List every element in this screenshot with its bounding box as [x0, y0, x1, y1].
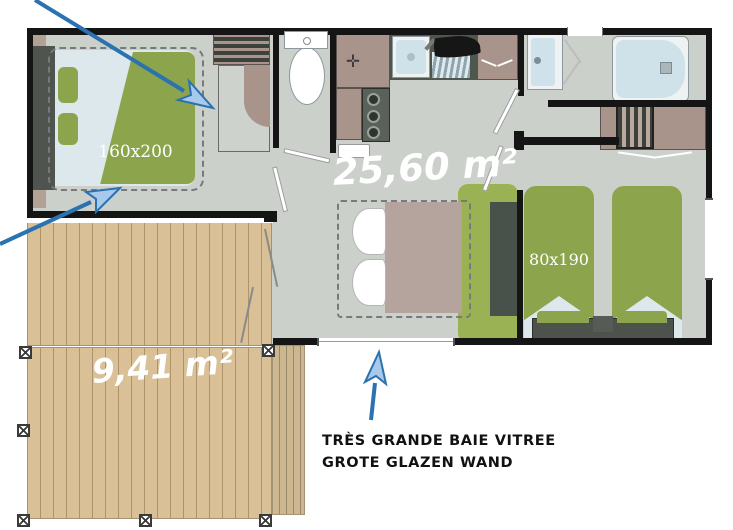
twin-beds-label: 80x190 — [524, 250, 594, 269]
deck-post-icon — [262, 344, 275, 357]
burner — [367, 126, 380, 139]
shower-drain — [660, 62, 672, 74]
sink-drain — [407, 53, 415, 61]
terrace-side-strip — [272, 345, 305, 515]
wall-right — [706, 28, 712, 345]
bay-window-glass-line — [319, 341, 453, 342]
toilet-flush-button — [303, 37, 311, 45]
window-right-wall — [705, 198, 713, 280]
dining-outline — [337, 200, 471, 318]
bay-window — [317, 338, 455, 346]
burner — [367, 110, 380, 123]
wall-kitchen-bath — [518, 34, 524, 96]
wall-left — [27, 28, 33, 218]
bedside-table — [593, 316, 613, 332]
burner — [367, 93, 380, 106]
wall-bedroom2-left — [517, 190, 523, 345]
deck-post-icon — [19, 346, 32, 359]
sofa-backrest — [490, 202, 518, 316]
wall-bedroom1-wc — [273, 34, 279, 148]
kitchen-cabinet — [336, 88, 362, 140]
wall-door-post — [264, 211, 277, 222]
deck-post-icon — [17, 424, 30, 437]
kitchen-cabinet-right — [477, 34, 518, 80]
deck-post-icon — [17, 514, 30, 527]
window-bathroom-top — [567, 27, 603, 36]
shower-floor — [616, 40, 685, 98]
deck-post-icon — [259, 514, 272, 527]
wall-top — [27, 28, 712, 35]
callout-arrow-bay-window — [365, 352, 386, 420]
wall-bath-bottom — [548, 100, 712, 107]
terrace-deck-upper — [27, 222, 272, 346]
floorplan-canvas: 160x200 ✛ 80x190 — [0, 0, 733, 530]
washbasin-tap — [534, 57, 541, 64]
master-bed-outline — [48, 47, 204, 191]
wall-bedroom1-bottom — [27, 211, 273, 218]
wardrobe-icon — [616, 105, 654, 149]
bench-cushion — [617, 311, 667, 323]
bench-cushion — [537, 311, 589, 323]
master-bed-label: 160x200 — [88, 142, 183, 162]
caption-dutch: GROTE GLAZEN WAND — [322, 452, 556, 474]
vent-cross-icon: ✛ — [341, 50, 365, 74]
caption-text: TRÈS GRANDE BAIE VITREE GROTE GLAZEN WAN… — [322, 430, 556, 474]
wall-wc-kitchen — [330, 34, 336, 153]
caption-french: TRÈS GRANDE BAIE VITREE — [322, 430, 556, 452]
toilet-bowl-icon — [289, 47, 325, 105]
deck-post-icon — [139, 514, 152, 527]
